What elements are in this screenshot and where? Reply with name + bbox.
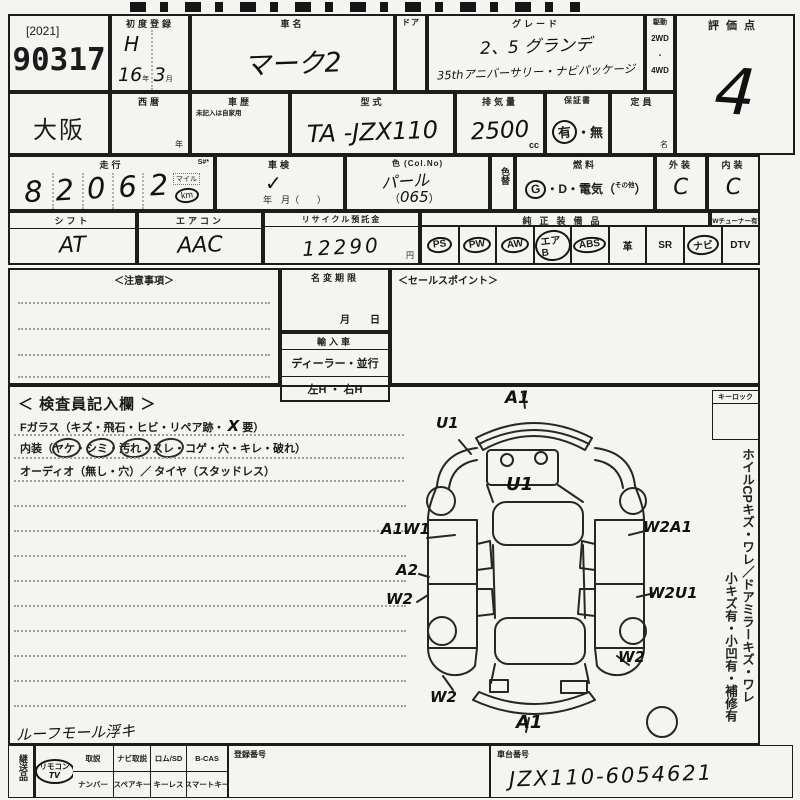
shaken-box: 車検 ✓ 年 月（ ） — [215, 155, 345, 211]
mileage-label: 走行 — [10, 157, 213, 171]
equipment-item-label: PW — [463, 236, 493, 255]
auction-house-box: 大阪 — [8, 92, 110, 155]
color-paren-close: ） — [429, 193, 440, 205]
score-value: 4 — [675, 52, 796, 134]
warranty-yes: 有 — [551, 119, 578, 145]
equipment-item: 革 — [608, 227, 646, 263]
import-label: 輸入車 — [282, 334, 388, 350]
accessory-item: 取説 — [73, 746, 113, 771]
equipment-item: エアB — [533, 227, 571, 263]
interior-grade-label: 内装 — [709, 157, 758, 171]
color-paren-open: （ — [389, 193, 400, 205]
fuel-rest: ・D・電気（ — [546, 182, 615, 196]
model-label: 型式 — [292, 94, 453, 108]
registration-number-box: 登録番号 — [228, 745, 490, 798]
equipment-item-label: ナビ — [686, 233, 720, 256]
accessory-item: スマートキー — [186, 771, 227, 797]
accessories-label-box: 継送品 — [8, 745, 34, 798]
equipment-item-label: DTV — [730, 240, 750, 251]
color-change-box: 色替 — [490, 155, 515, 211]
equipment-item: AW — [495, 227, 533, 263]
equipment-grid: PS PW AW エアB ABS 革 SR ナビ DTV — [420, 225, 760, 265]
accessory-item: ロム/SD — [150, 746, 186, 771]
first-registration-box: 初度登録 H 16年 3月 — [110, 14, 190, 92]
recycle-box: リサイクル預託金 12290 円 — [263, 211, 420, 265]
lot-year-tag: [2021] — [26, 24, 59, 38]
rear-glass — [493, 502, 583, 545]
wheel — [428, 617, 456, 645]
equipment-item: ナビ — [683, 227, 721, 263]
damage-label: W2U1 — [648, 584, 698, 602]
warranty-no: 無 — [590, 125, 603, 140]
recycle-unit: 円 — [406, 250, 414, 261]
shaken-line: 年 月（ ） — [263, 193, 326, 206]
color-change-label: 色替 — [499, 167, 512, 185]
audio-line: オーディオ（無し・穴）／ タイヤ（スタッドレス） — [20, 463, 275, 479]
front-bumper — [473, 692, 595, 714]
score-label: 評価点 — [677, 16, 793, 33]
damage-label: A1 — [516, 712, 542, 733]
color-box: 色 (Col.No) パール （065） — [345, 155, 490, 211]
color-code: 065 — [400, 188, 429, 206]
car-history-note: 未記入は自家用 — [196, 107, 242, 117]
recycle-value: 12290 — [264, 231, 418, 263]
equipment-item-label: 革 — [623, 238, 633, 253]
windshield — [495, 618, 585, 664]
equipment-item: ABS — [570, 227, 608, 263]
damage-label: U1 — [436, 414, 459, 432]
chassis-number-value: JZX110-6054621 — [509, 760, 714, 791]
model-box: 型式 TA -JZX110 — [290, 92, 455, 155]
interior-grade-box: 内装 C — [707, 155, 760, 211]
accessory-item: B-CAS — [186, 746, 227, 771]
model-value: TA -JZX110 — [292, 115, 454, 149]
displacement-label: 排気量 — [457, 94, 543, 108]
damage-label: W2 — [386, 590, 413, 608]
damage-label: W2 — [618, 648, 645, 666]
accessory-remote-tv: リモコン TV — [35, 746, 73, 797]
fuel-label: 燃料 — [517, 157, 653, 171]
displacement-box: 排気量 2500 cc — [455, 92, 545, 155]
car-history-label: 車歴 — [192, 94, 288, 108]
car-name: マーク2 — [191, 39, 393, 85]
notes-label: ＜注意事項＞ — [10, 270, 278, 287]
cut-off-title-fragment — [130, 2, 580, 12]
name-change-box: 名変期限 月 日 — [280, 268, 390, 332]
glass-line-prefix: Fガラス（キズ・飛石・ヒビ・リペア跡・ — [20, 422, 225, 434]
stamp-circle — [647, 707, 677, 737]
grade-line2: 35thアニバーサリー・ナビパッケージ — [429, 60, 643, 83]
equipment-item-label: エアB — [533, 228, 572, 263]
warranty-sep: ・ — [577, 125, 590, 140]
wheel — [620, 618, 646, 644]
drive-4wd: 4WD — [647, 66, 673, 75]
equipment-item-label: PS — [426, 236, 453, 255]
tuner-label: Wチューナー有 — [712, 213, 758, 225]
capacity-box: 定員 名 — [610, 92, 675, 155]
import-line1: ディーラー・並行 — [282, 355, 388, 371]
shaken-label: 車検 — [217, 157, 343, 171]
chassis-number-label: 車台番号 — [497, 749, 529, 760]
accessories-label: 継送品 — [17, 754, 30, 781]
mileage-box: 走行 S#* 82062 マイル km — [8, 155, 215, 211]
name-change-line: 月 日 — [340, 311, 380, 326]
accessories-grid: 取説 ナビ取説 ロム/SD B-CAS リモコン TV ナンバー スペアキー キ… — [34, 745, 228, 798]
exterior-box: 外装 C — [655, 155, 707, 211]
key-lock-box: キーロック — [712, 390, 759, 440]
equipment-item: SR — [645, 227, 683, 263]
aircon-value: AAC — [139, 231, 262, 260]
fuel-close: ） — [635, 182, 647, 196]
chassis-number-box: 車台番号 JZX110-6054621 — [490, 745, 793, 798]
damage-label: U1 — [506, 474, 533, 495]
aircon-label: エアコン — [139, 213, 261, 229]
interior-grade-value: C — [708, 173, 759, 201]
equipment-item-label: ABS — [573, 235, 608, 254]
glass-line-suffix: 要） — [242, 422, 264, 434]
sales-point-box: ＜セールスポイント＞ — [390, 268, 760, 385]
equipment-item-label: AW — [500, 236, 530, 255]
capacity-label: 定員 — [612, 94, 673, 108]
damage-label: W2A1 — [643, 518, 692, 536]
damage-label: W2 — [430, 688, 457, 706]
bottom-note: ルーフモール浮キ — [16, 720, 136, 745]
registration-number-label: 登録番号 — [234, 749, 266, 760]
registration-era: H — [124, 32, 139, 56]
car-name-box: 車名 マーク2 — [190, 14, 395, 92]
exterior-value: C — [656, 173, 706, 201]
glass-hand-mark: X — [228, 417, 240, 435]
mileage-unit-km: km — [174, 187, 199, 204]
remote-line2: TV — [40, 772, 70, 780]
capacity-unit: 名 — [660, 139, 668, 150]
drive-box: 駆動 2WD ・ 4WD — [645, 14, 675, 92]
lot-number: 90317 — [10, 42, 108, 78]
key-lock-label: キーロック — [713, 391, 758, 404]
side-note-2: 小キズ有・小凹有・補修有 — [721, 572, 740, 742]
damage-label: A2 — [396, 561, 418, 579]
door-label: ドア — [397, 16, 425, 28]
drive-label: 駆動 — [647, 16, 673, 27]
car-name-label: 車名 — [192, 16, 393, 30]
accessory-item: スペアキー — [113, 771, 150, 797]
car-diagram — [413, 388, 713, 748]
registration-year: 16 — [118, 64, 142, 86]
shift-label: シフト — [10, 213, 135, 229]
lot-number-box: [2021] 90317 — [8, 14, 110, 92]
mileage-unit-mile: マイル — [173, 173, 200, 185]
grade-box: グレード 2、5 グランデ 35thアニバーサリー・ナビパッケージ — [427, 14, 645, 92]
fuel-gasoline: G — [524, 179, 547, 200]
door-box: ドア — [395, 14, 427, 92]
accessory-item: ナビ取説 — [113, 746, 150, 771]
grade-line1: 2、5 グランデ — [429, 28, 644, 60]
damage-label: A1 — [505, 388, 530, 408]
rear-bumper — [476, 423, 592, 450]
shaken-check: ✓ — [265, 171, 282, 195]
equipment-item: PS — [422, 227, 458, 263]
western-year-box: 西暦 年 — [110, 92, 190, 155]
western-year-unit: 年 — [175, 139, 183, 150]
equipment-item: PW — [458, 227, 496, 263]
equipment-item: DTV — [721, 227, 759, 263]
side-note-1: ホイルCPキズ・ワレ／ドアミラーキズ・ワレ — [738, 448, 757, 740]
equipment-item-label: SR — [658, 240, 672, 251]
shift-value: AT — [10, 231, 136, 260]
name-change-label: 名変期限 — [282, 270, 388, 284]
drive-dot: ・ — [647, 50, 673, 61]
exterior-label: 外装 — [657, 157, 705, 171]
accessory-item: キーレス — [150, 771, 186, 797]
aircon-box: エアコン AAC — [137, 211, 263, 265]
inspector-label: ＜ 検査員記入欄 ＞ — [18, 393, 156, 414]
registration-month-unit: 月 — [166, 76, 173, 83]
damage-label: A1W1 — [381, 520, 430, 538]
mileage-s-label: S#* — [198, 159, 209, 166]
warranty-box: 保証書 有・無 — [545, 92, 610, 155]
glass-line: Fガラス（キズ・飛石・ヒビ・リペア跡・ X 要） — [20, 417, 264, 435]
shift-box: シフト AT — [8, 211, 137, 265]
fuel-box: 燃料 G・D・電気（その他） — [515, 155, 655, 211]
notes-box: ＜注意事項＞ — [8, 268, 280, 385]
registration-month: 3 — [154, 64, 166, 86]
displacement-unit: cc — [529, 140, 539, 150]
registration-year-unit: 年 — [142, 76, 149, 83]
auction-house: 大阪 — [10, 110, 108, 145]
sales-point-label: ＜セールスポイント＞ — [398, 272, 498, 287]
fuel-other: その他 — [615, 182, 635, 189]
auction-sheet: [2021] 90317 大阪 初度登録 H 16年 3月 車名 マーク2 ドア… — [0, 0, 800, 800]
score-box: 評価点 4 — [675, 14, 795, 155]
car-history-box: 車歴 未記入は自家用 — [190, 92, 290, 155]
grade-label: グレード — [429, 16, 643, 30]
western-year-label: 西暦 — [112, 94, 188, 108]
drive-2wd: 2WD — [647, 34, 673, 43]
mileage-value: 82062 — [23, 167, 182, 209]
warranty-label: 保証書 — [547, 94, 608, 106]
recycle-label: リサイクル預託金 — [265, 213, 418, 227]
accessory-item: ナンバー — [73, 771, 113, 797]
first-registration-label: 初度登録 — [112, 16, 188, 30]
